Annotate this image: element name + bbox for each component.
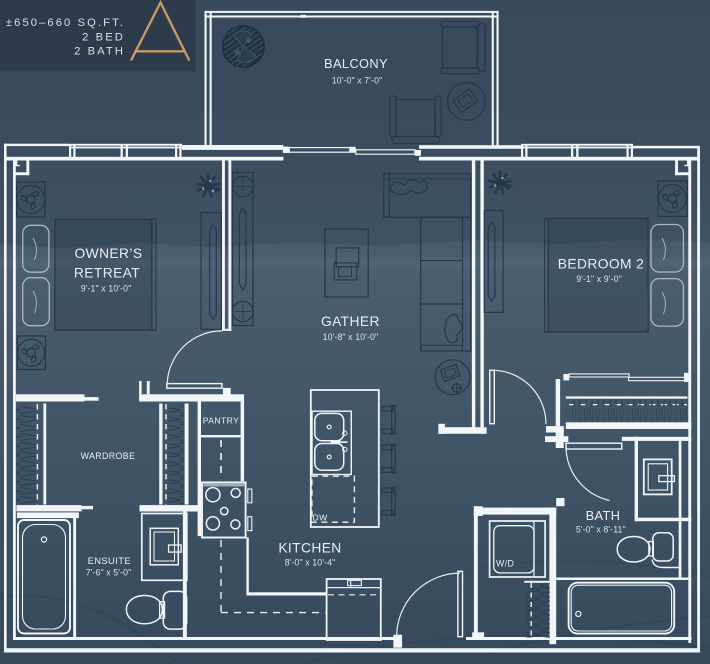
- svg-text:±650–660 SQ.FT.: ±650–660 SQ.FT.: [6, 17, 125, 29]
- svg-text:7'-6" x 5'-0": 7'-6" x 5'-0": [86, 568, 132, 578]
- svg-text:BATH: BATH: [586, 508, 621, 523]
- svg-text:10'-8" x 10'-0": 10'-8" x 10'-0": [323, 332, 379, 342]
- svg-text:BALCONY: BALCONY: [324, 56, 388, 71]
- svg-text:WARDROBE: WARDROBE: [81, 451, 136, 461]
- svg-text:2 BED: 2 BED: [82, 32, 125, 44]
- svg-text:RETREAT: RETREAT: [74, 266, 140, 281]
- svg-text:BEDROOM 2: BEDROOM 2: [558, 257, 644, 272]
- svg-text:10'-0" x 7'-0": 10'-0" x 7'-0": [332, 76, 383, 86]
- svg-text:W/D: W/D: [496, 559, 514, 569]
- svg-text:DW: DW: [313, 513, 329, 523]
- svg-text:PANTRY: PANTRY: [203, 415, 239, 425]
- svg-text:ENSUITE: ENSUITE: [88, 555, 131, 566]
- svg-text:2 BATH: 2 BATH: [74, 46, 125, 58]
- svg-text:5'-0" x 8'-11": 5'-0" x 8'-11": [576, 524, 626, 534]
- svg-text:9'-1" x 10'-0": 9'-1" x 10'-0": [81, 283, 132, 293]
- svg-text:9'-1" x 9'-0": 9'-1" x 9'-0": [576, 274, 622, 284]
- svg-text:8'-0" x 10'-4": 8'-0" x 10'-4": [285, 558, 336, 568]
- svg-text:KITCHEN: KITCHEN: [278, 541, 341, 556]
- svg-text:OWNER’S: OWNER’S: [75, 246, 143, 261]
- svg-text:GATHER: GATHER: [321, 314, 380, 329]
